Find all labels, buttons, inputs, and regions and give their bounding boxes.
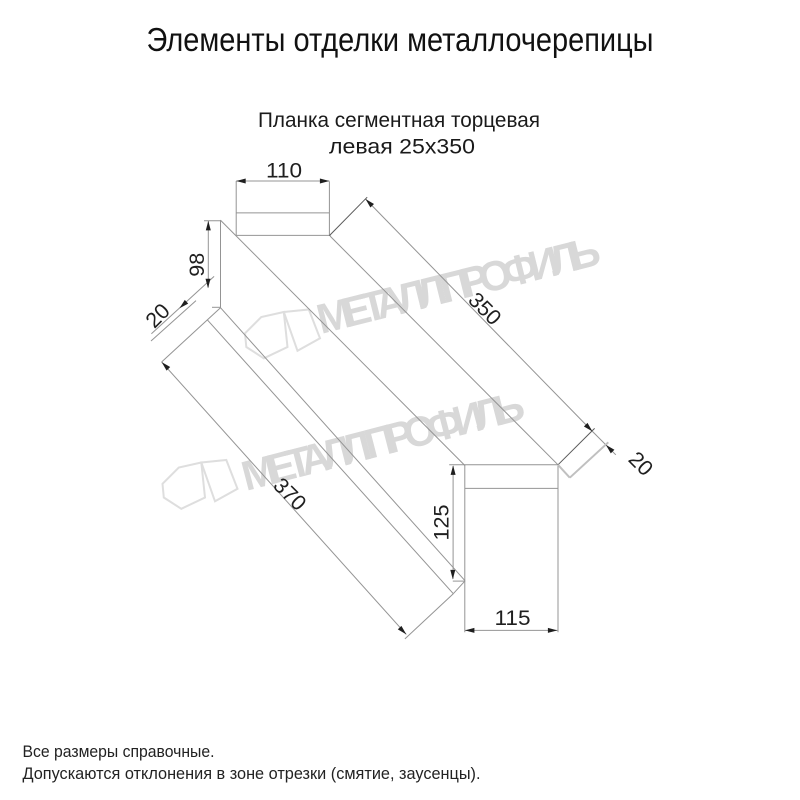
svg-text:110: 110 [266,159,302,183]
svg-text:98: 98 [185,253,209,277]
svg-text:Все размеры справочные.: Все размеры справочные. [23,743,215,761]
svg-text:125: 125 [429,504,453,540]
svg-text:Планка сегментная торцевая: Планка сегментная торцевая [258,108,540,132]
svg-text:Элементы отделки металлочерепи: Элементы отделки металлочерепицы [147,21,654,58]
svg-text:левая 25х350: левая 25х350 [329,135,475,159]
svg-text:115: 115 [495,606,531,630]
svg-text:Допускаются отклонения в зоне: Допускаются отклонения в зоне отрезки (с… [23,765,481,783]
